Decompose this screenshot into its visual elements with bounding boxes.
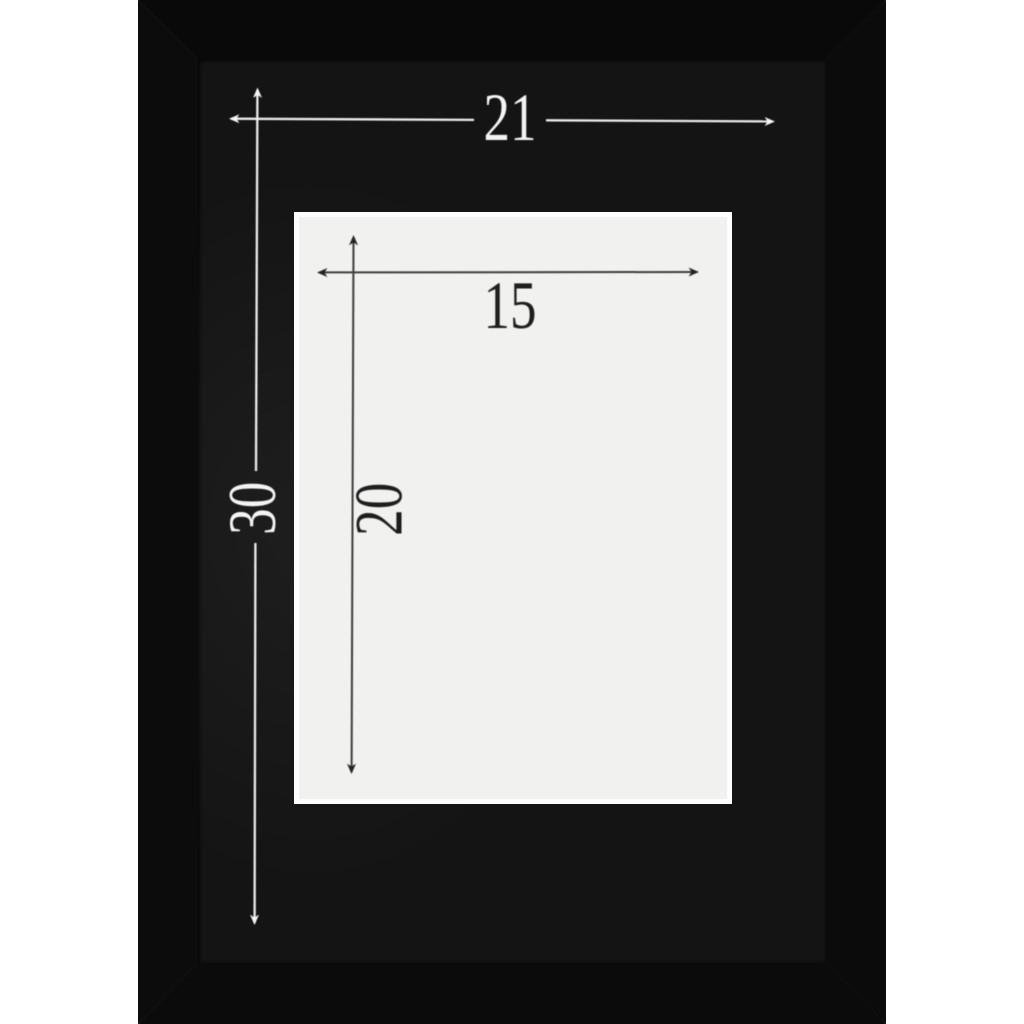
- svg-text:20: 20: [342, 483, 417, 536]
- svg-text:30: 30: [216, 482, 291, 535]
- svg-text:15: 15: [483, 269, 536, 344]
- svg-text:21: 21: [483, 81, 536, 156]
